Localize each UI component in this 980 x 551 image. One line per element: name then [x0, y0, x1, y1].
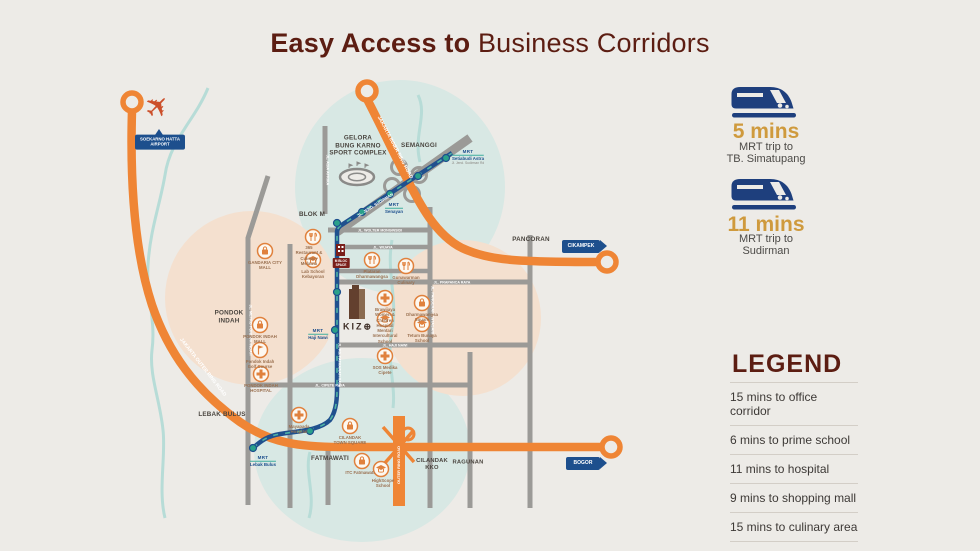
- restaurant-icon: [365, 253, 380, 268]
- road-label-fatmawati-raya: JL. RS. FATMAWATI RAYA: [338, 343, 342, 388]
- bogor-badge-label: BOGOR: [574, 460, 593, 466]
- arrow-right-icon: [600, 457, 607, 469]
- mbloc-label-line2: SPACE: [335, 263, 348, 267]
- road-label-antasari: JL. PANGERAN ANTASARI: [431, 286, 435, 334]
- legend-item: 15 mins to office corridor: [730, 382, 858, 425]
- trip-desc-2b: Sudirman: [742, 245, 789, 257]
- landmark-gbk: GELORA BUNG KARNO SPORT COMPLEX: [329, 135, 386, 158]
- landmark-semanggi: SEMANGGI: [401, 142, 437, 150]
- poi-label: ITC Fatmawati: [345, 470, 375, 475]
- landmark-pondok-indah: PONDOK INDAH: [215, 309, 244, 324]
- road-label-asia-afrika: JL. ASIA AFRIKA: [326, 155, 330, 186]
- arrow-right-icon: [600, 240, 607, 252]
- restaurant-icon: [399, 259, 414, 274]
- cikampek-badge: CIKAMPEK: [562, 240, 600, 253]
- poi-label: PONDOK INDAH MALL: [239, 334, 281, 345]
- bogor-badge: BOGOR: [566, 457, 600, 470]
- poi-label: Brawijaya Women & Children Hospital: [368, 307, 402, 328]
- mall-icon: [415, 296, 430, 311]
- kizu-building-icon: [349, 285, 365, 319]
- legend-item: 11 mins to hospital: [730, 454, 858, 483]
- legend-item: 6 mins to prime school: [730, 425, 858, 454]
- landmark-ragunan: RAGUNAN: [452, 460, 483, 467]
- mall-icon: [253, 318, 268, 333]
- station-haji-nawi: MRT Haji Nawi: [308, 329, 328, 340]
- trip-desc-2a: MRT trip to: [739, 233, 793, 245]
- road-label-haji-nawi: JL. HAJI NAWI: [383, 344, 408, 348]
- golf-icon: [253, 343, 268, 358]
- mall-icon: [355, 454, 370, 469]
- road-label-cipete: JL. CIPETE RAYA: [315, 384, 345, 388]
- landmark-gbk-line1: GELORA: [329, 135, 386, 143]
- poi-label: 365 Restaurant & Culinary Melawai: [294, 245, 324, 266]
- road-label-metro-pondok-indah: JL. METRO PONDOK INDAH: [249, 304, 253, 355]
- road-label-wolter: JL. WOLTER MONGINSIDI: [358, 229, 402, 233]
- landmark-cilandak-line2: KKO: [416, 465, 448, 472]
- legend-item: 9 mins to shopping mall: [730, 483, 858, 512]
- hospital-icon: [378, 291, 393, 306]
- landmark-fatmawati: FATMAWATI: [311, 455, 349, 463]
- trip-desc-1b: TB. Simatupang: [727, 153, 806, 165]
- station-name: Senayan: [385, 208, 403, 213]
- page-title-regular: Business Corridors: [478, 28, 710, 58]
- page-title-bold: Easy Access to: [270, 28, 470, 58]
- airport-badge-line2: AIRPORT: [135, 142, 185, 147]
- poi-label: CILANDAK TOWN SQUARE: [332, 435, 368, 446]
- poi-label: Mayapada Hospital: [282, 424, 316, 435]
- station-sub: Jl. Jend. Sudirman Rd: [452, 160, 484, 164]
- station-lebak-bulus: MRT Lebak Bulus: [250, 456, 276, 467]
- poi-label: Pondok Indah Golf Course: [242, 359, 278, 370]
- road-label-wijaya: JL. WIJAYA: [373, 246, 393, 250]
- mbloc-building-icon: [336, 244, 345, 256]
- restaurant-icon: [306, 230, 321, 245]
- landmark-cilandak-kko: CILANDAK KKO: [416, 458, 448, 472]
- page-title: Easy Access to Business Corridors: [270, 28, 709, 59]
- poi-label: Tetum Bunaya School: [405, 333, 439, 344]
- poi-label: Dharmawangsa Square: [404, 312, 440, 323]
- poi-label: GANDARIA CITY MALL: [244, 260, 286, 271]
- mall-icon: [258, 244, 273, 259]
- infographic-canvas: JAKARTA OUTER RING ROAD JAKARTA INNER RI…: [0, 0, 980, 551]
- hospital-icon: [378, 349, 393, 364]
- poi-label: SOS Medika Cipete: [368, 365, 402, 376]
- station-name: Haji Nawi: [308, 334, 328, 339]
- poi-label: Mentari Intercultural School: [368, 328, 402, 344]
- landmark-cilandak-line1: CILANDAK: [416, 458, 448, 465]
- poi-label: Lab School Kebayoran: [296, 269, 330, 280]
- legend-heading: LEGEND: [732, 350, 842, 379]
- poi-label: HighScope School: [368, 478, 398, 489]
- school-icon: [374, 462, 389, 477]
- legend-list: 15 mins to office corridor 6 mins to pri…: [730, 382, 858, 542]
- legend-item: 15 mins to culinary area: [730, 512, 858, 542]
- trip-desc-1a: MRT trip to: [739, 141, 793, 153]
- station-senayan: MRT Senayan: [385, 203, 403, 214]
- cikampek-badge-label: CIKAMPEK: [568, 243, 595, 249]
- mbloc-label: M BLOC SPACE: [333, 258, 350, 268]
- landmark-pondok-indah-line2: INDAH: [215, 317, 244, 325]
- airport-badge: SOEKARNO HATTA AIRPORT: [135, 135, 185, 150]
- hospital-icon: [292, 408, 307, 423]
- landmark-gbk-line3: SPORT COMPLEX: [329, 150, 386, 158]
- landmark-pondok-indah-line1: PONDOK: [215, 309, 244, 317]
- poi-label: Plataran Dharmawangsa: [354, 269, 390, 280]
- station-setiabudi: MRT Setiabudi Astra Jl. Jend. Sudirman R…: [452, 150, 484, 165]
- landmark-blok-m: BLOK M: [299, 211, 325, 219]
- landmark-lebak-bulus: LEBAK BULUS: [198, 411, 245, 419]
- station-name: Lebak Bulus: [250, 461, 276, 466]
- road-label-prapanca: JL. PRAPANCA RAYA: [434, 281, 471, 285]
- landmark-pancoran: PANCORAN: [512, 236, 550, 244]
- poi-label: Gunawarman Culinary: [389, 275, 423, 286]
- station-name: Setiabudi Astra: [452, 155, 484, 160]
- landmark-gbk-line2: BUNG KARNO: [329, 142, 386, 150]
- mall-icon: [343, 419, 358, 434]
- poi-label: PONDOK INDAH HOSPITAL: [240, 383, 282, 394]
